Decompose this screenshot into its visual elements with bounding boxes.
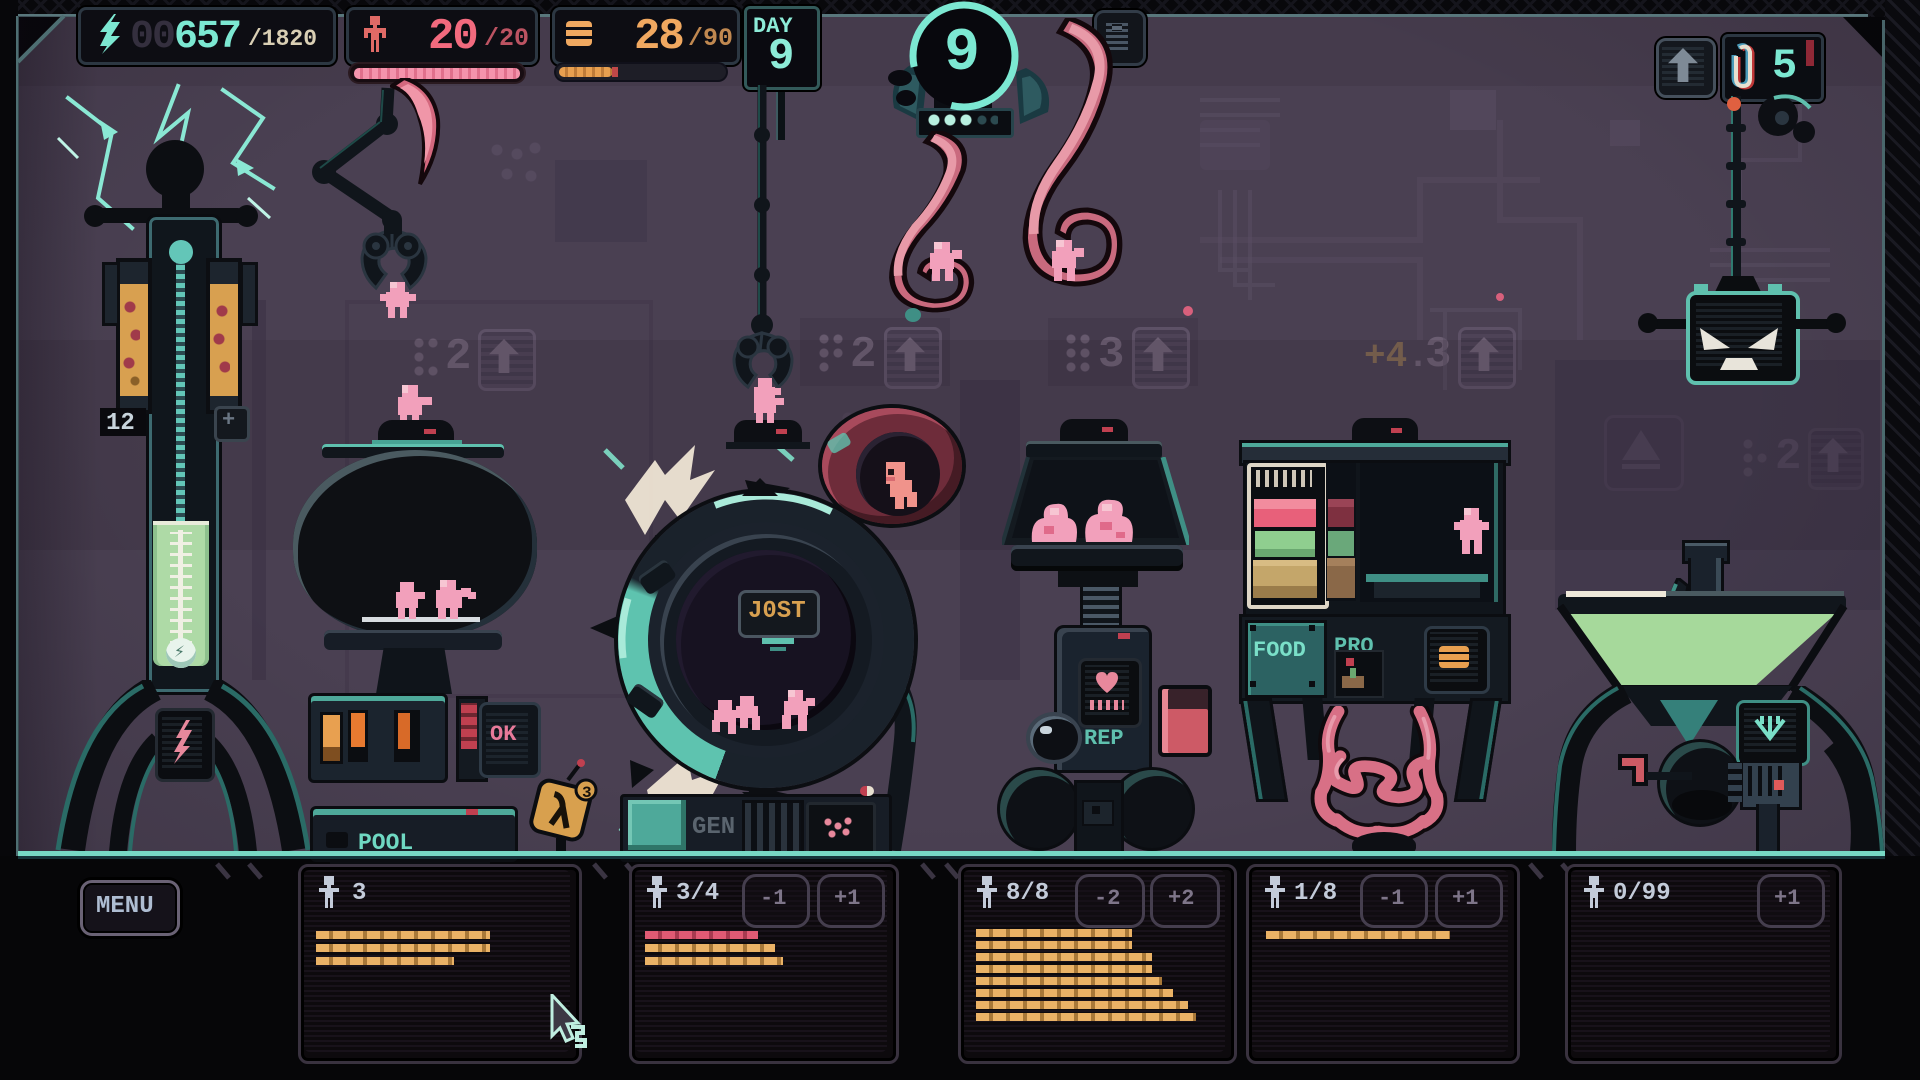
svg-text:3: 3 — [582, 784, 592, 802]
